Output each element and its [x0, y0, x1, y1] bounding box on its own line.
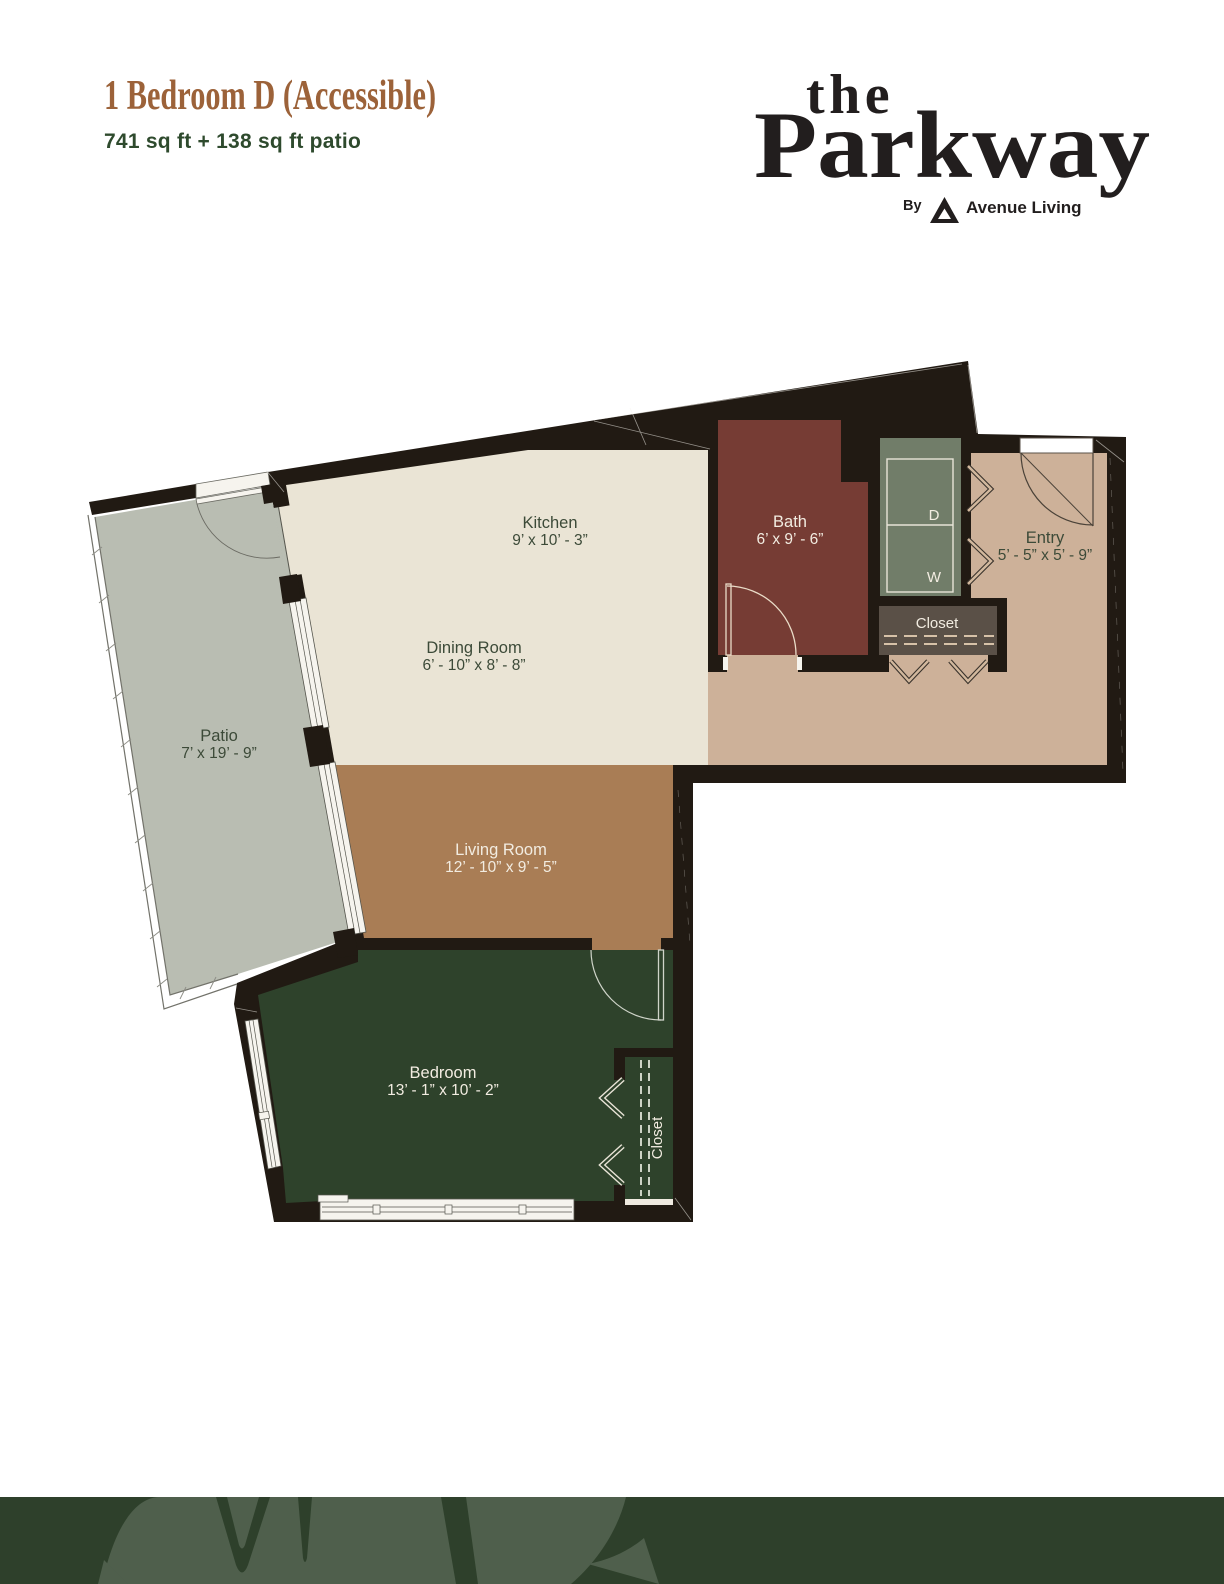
svg-text:Parkway: Parkway [754, 94, 1150, 198]
svg-text:W: W [927, 569, 942, 586]
svg-text:12’ - 10” x 9’ - 5”: 12’ - 10” x 9’ - 5” [445, 859, 557, 876]
svg-text:Bedroom: Bedroom [410, 1064, 477, 1082]
svg-text:Closet: Closet [649, 1116, 666, 1159]
svg-text:D: D [929, 507, 940, 524]
svg-text:Bath: Bath [773, 513, 807, 531]
svg-text:7’ x 19’ - 9”: 7’ x 19’ - 9” [181, 745, 257, 762]
svg-text:13’ - 1” x 10’ - 2”: 13’ - 1” x 10’ - 2” [387, 1082, 499, 1099]
svg-text:Dining Room: Dining Room [426, 639, 521, 657]
svg-text:6’ - 10” x 8’ - 8”: 6’ - 10” x 8’ - 8” [422, 657, 525, 674]
svg-text:By: By [903, 198, 922, 214]
svg-text:Kitchen: Kitchen [522, 514, 577, 532]
svg-text:Entry: Entry [1026, 529, 1065, 547]
svg-text:6’ x 9’ - 6”: 6’ x 9’ - 6” [757, 531, 824, 548]
svg-text:5’ - 5” x 5’ - 9”: 5’ - 5” x 5’ - 9” [998, 547, 1092, 564]
svg-text:Patio: Patio [200, 727, 238, 745]
svg-text:Living Room: Living Room [455, 841, 547, 859]
svg-text:1 Bedroom D (Accessible): 1 Bedroom D (Accessible) [104, 71, 436, 118]
svg-text:9’ x 10’ - 3”: 9’ x 10’ - 3” [512, 532, 588, 549]
svg-text:Closet: Closet [916, 615, 959, 632]
svg-text:Avenue Living: Avenue Living [966, 198, 1082, 217]
svg-text:741 sq ft + 138 sq ft patio: 741 sq ft + 138 sq ft patio [104, 130, 361, 153]
